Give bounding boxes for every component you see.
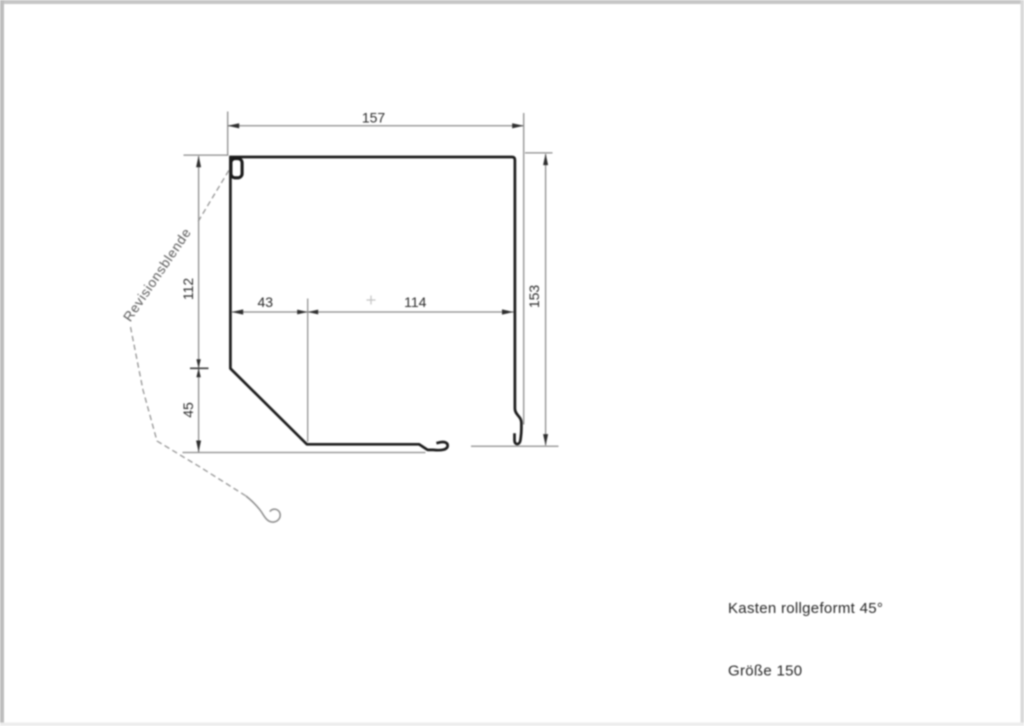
svg-text:153: 153 [526, 285, 542, 309]
svg-text:Kasten rollgeformt 45°: Kasten rollgeformt 45° [728, 600, 883, 617]
svg-text:43: 43 [258, 294, 274, 310]
svg-text:157: 157 [362, 109, 386, 125]
svg-text:Größe 150: Größe 150 [728, 663, 802, 680]
svg-text:45: 45 [180, 402, 196, 418]
svg-text:112: 112 [180, 278, 196, 301]
svg-text:114: 114 [404, 294, 427, 310]
